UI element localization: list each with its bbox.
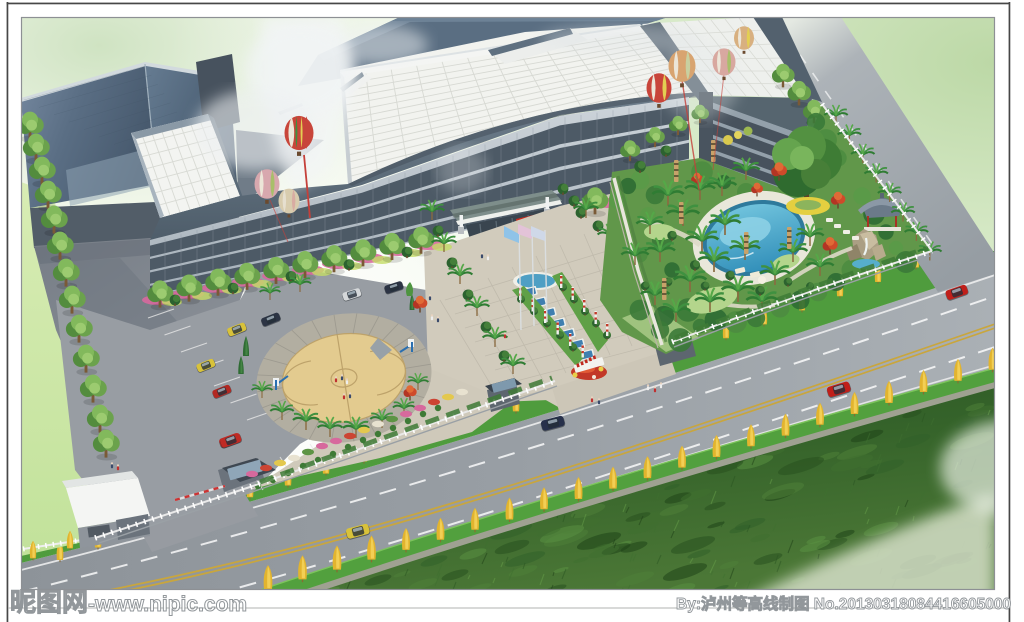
svg-text:By:泸州等高线制图 No.201303180844166: By:泸州等高线制图 No.20130318084416605000: [676, 594, 1011, 613]
